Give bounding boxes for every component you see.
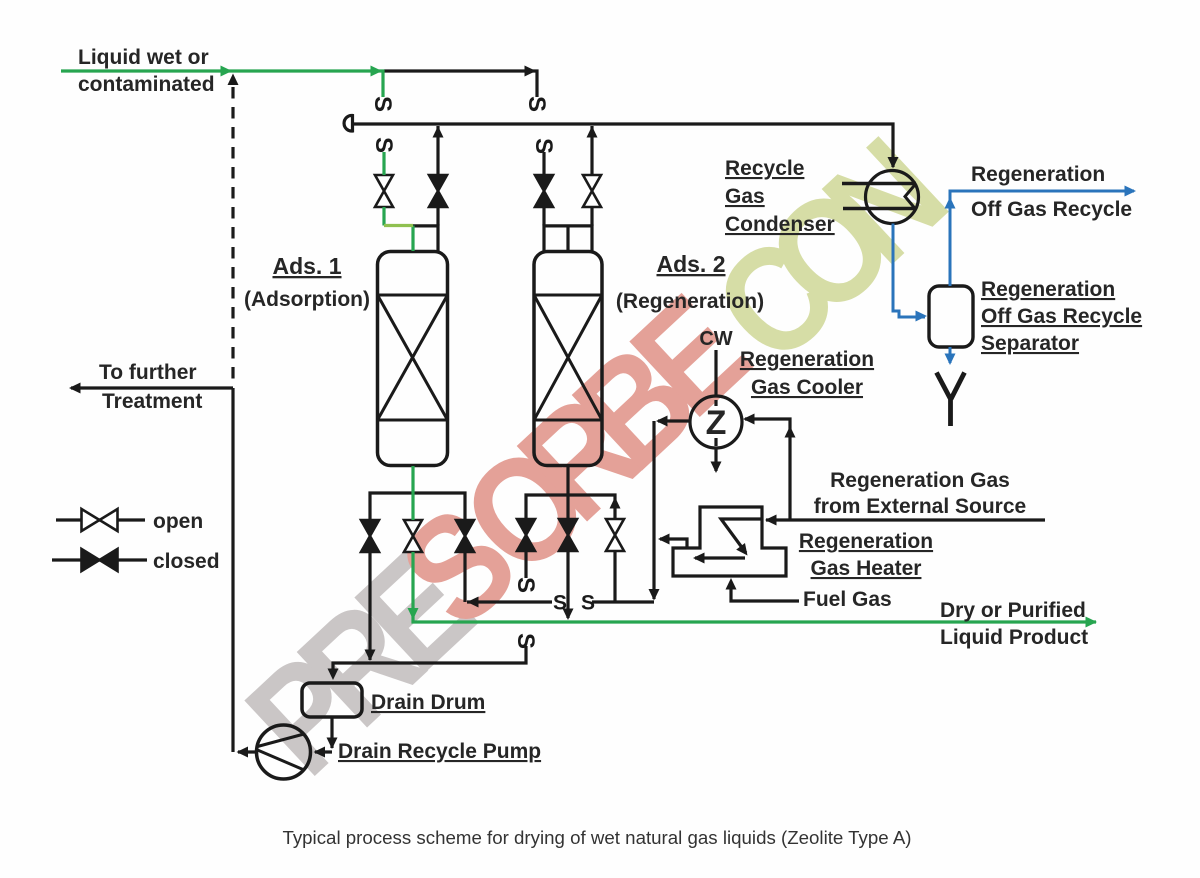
svg-text:S: S [523,96,550,112]
svg-text:Liquid wet or: Liquid wet or [78,46,209,69]
svg-text:closed: closed [153,550,220,573]
svg-text:Liquid Product: Liquid Product [940,626,1088,649]
svg-text:S: S [581,592,595,615]
svg-text:Drain Recycle Pump: Drain Recycle Pump [338,740,541,763]
svg-text:Off Gas Recycle: Off Gas Recycle [981,305,1142,328]
svg-text:Gas Cooler: Gas Cooler [751,376,863,399]
svg-text:Regeneration Gas: Regeneration Gas [830,469,1010,492]
svg-text:Fuel Gas: Fuel Gas [803,588,892,611]
svg-text:Recycle: Recycle [725,157,804,180]
svg-text:Ads. 1: Ads. 1 [272,253,341,279]
svg-text:Regeneration: Regeneration [799,530,933,553]
svg-text:S: S [512,577,539,593]
svg-text:S: S [369,96,396,112]
svg-text:S: S [530,138,557,154]
svg-text:Off Gas Recycle: Off Gas Recycle [971,198,1132,221]
svg-text:Regeneration: Regeneration [981,278,1115,301]
svg-text:open: open [153,510,203,533]
svg-text:Dry or Purified: Dry or Purified [940,599,1086,622]
svg-text:To further: To further [99,361,197,384]
svg-text:Ads. 2: Ads. 2 [656,251,725,277]
svg-text:S: S [553,592,567,615]
svg-text:CW: CW [699,328,732,350]
svg-text:Regeneration: Regeneration [971,163,1105,186]
svg-text:from External Source: from External Source [814,495,1026,518]
svg-text:Condenser: Condenser [725,213,835,236]
svg-text:Separator: Separator [981,332,1079,355]
svg-text:S: S [370,137,397,153]
svg-text:Gas: Gas [725,185,765,208]
svg-text:Gas Heater: Gas Heater [811,557,922,580]
svg-text:Drain Drum: Drain Drum [371,691,485,714]
svg-text:(Regeneration): (Regeneration) [616,290,764,313]
svg-text:(Adsorption): (Adsorption) [244,288,370,311]
svg-text:contaminated: contaminated [78,73,215,96]
svg-text:Treatment: Treatment [102,390,202,413]
svg-text:S: S [512,633,539,649]
svg-text:Z: Z [706,404,727,442]
svg-text:Typical process scheme for dry: Typical process scheme for drying of wet… [282,827,911,848]
svg-text:Regeneration: Regeneration [740,348,874,371]
